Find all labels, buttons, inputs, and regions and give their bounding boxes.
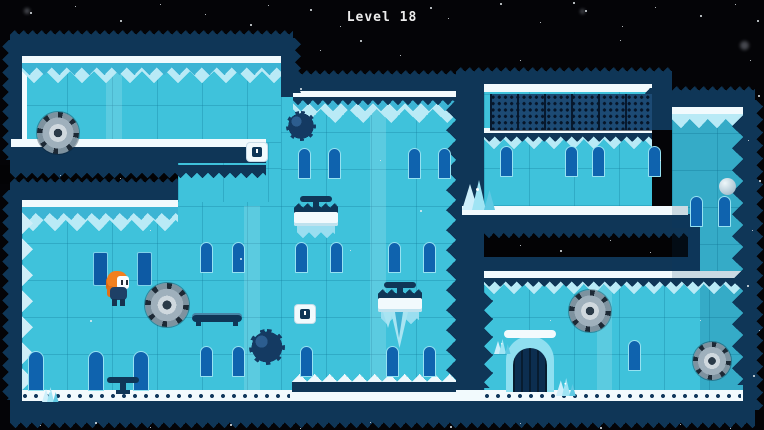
crystal-sparkle (564, 383, 566, 385)
crystal-shard (472, 180, 486, 210)
player-leg (112, 299, 117, 306)
ice-crystal (556, 378, 576, 396)
arched-window (298, 148, 311, 179)
icicle-strip (22, 63, 281, 75)
icicle-strip (10, 165, 266, 178)
tall-window (28, 351, 44, 391)
arched-window (423, 242, 436, 273)
platform-foot (233, 321, 238, 326)
tall-window (133, 351, 149, 391)
arched-window (408, 148, 421, 179)
crystal-sparkle (501, 343, 503, 345)
wall-block (456, 73, 484, 392)
wall-slot-window (137, 252, 152, 286)
platform-icicles (297, 226, 335, 238)
marker-block-icon-detail (304, 311, 306, 315)
wall-block (10, 400, 755, 416)
player-eye (121, 280, 123, 285)
arched-window (592, 146, 605, 177)
icicle-strip (732, 115, 743, 385)
ice-ball (719, 178, 736, 195)
saw-blade-hazard (37, 112, 79, 154)
saw-blade-hazard (145, 283, 189, 327)
arched-window (690, 196, 703, 227)
crystal-shard (499, 339, 506, 354)
arched-window (200, 346, 213, 377)
arched-window (565, 146, 578, 177)
player-character (106, 271, 132, 307)
arched-window (648, 146, 661, 177)
spike-ball-hazard (286, 111, 316, 141)
arched-window (200, 242, 213, 273)
ice-crystal (462, 180, 496, 210)
icicle-strip (754, 100, 763, 410)
arched-window (300, 346, 313, 377)
crystal-sparkle (476, 188, 479, 191)
arched-window (386, 346, 399, 377)
crystal-shard (569, 384, 576, 396)
game-viewport[interactable]: Level 18 (0, 0, 764, 430)
icicle-strip (2, 40, 11, 160)
icicle-strip (446, 100, 456, 390)
arched-window (330, 242, 343, 273)
player-leg (120, 299, 125, 306)
arched-window (718, 196, 731, 227)
player-eye (126, 280, 128, 285)
arched-window (328, 148, 341, 179)
arched-window (232, 346, 245, 377)
door-snow-cap (504, 330, 556, 338)
wall-highlight (370, 97, 386, 392)
arched-window (438, 148, 451, 179)
arched-window (388, 242, 401, 273)
ice-crystal (42, 387, 59, 402)
marker-block-icon-detail (256, 149, 258, 153)
wall-block (10, 36, 293, 58)
wall-block (10, 184, 22, 416)
snow-ledge (484, 84, 652, 92)
icicle-strip (10, 30, 293, 37)
platform-foot (196, 321, 201, 326)
icicle-strip (2, 190, 11, 400)
saw-blade-hazard (569, 290, 611, 332)
icicle-strip (293, 97, 456, 105)
ice-crystal (494, 339, 511, 354)
level-structure (0, 0, 764, 430)
icicle-strip (484, 228, 688, 238)
spike-ball-hazard (249, 329, 285, 365)
arched-window (232, 242, 245, 273)
crystal-shard (484, 190, 495, 210)
arched-window (295, 242, 308, 273)
tall-window (88, 351, 104, 391)
icicle-strip (484, 133, 652, 142)
icicle-strip (484, 292, 493, 388)
wall-block (10, 145, 180, 165)
icicle-strip (10, 178, 178, 185)
crystal-shard (47, 387, 54, 402)
valve-base (116, 390, 130, 394)
crystal-shard (562, 378, 570, 396)
wall-block (652, 73, 672, 130)
arched-window (423, 346, 436, 377)
vent-grate-row (490, 94, 652, 130)
saw-blade-hazard (693, 342, 731, 380)
wall-block (281, 35, 293, 97)
crystal-sparkle (49, 391, 51, 393)
crystal-shard (53, 392, 59, 402)
floor-gravel (22, 392, 290, 399)
arched-window (628, 340, 641, 371)
wall-block (293, 76, 458, 92)
spike-platform (378, 298, 422, 312)
icicle-strip (293, 70, 456, 77)
floor-gravel (484, 392, 741, 399)
icicle-strip (484, 278, 743, 287)
crystal-shard (505, 344, 511, 354)
exit-door (513, 348, 547, 392)
icicle-strip (10, 416, 755, 428)
icicle-strip (672, 86, 755, 93)
icicle-strip (293, 38, 301, 93)
arched-window (500, 146, 513, 177)
icicle-strip (22, 207, 178, 220)
spike-platform (294, 212, 338, 226)
wall-block (456, 257, 700, 272)
icicle-strip (456, 67, 672, 74)
